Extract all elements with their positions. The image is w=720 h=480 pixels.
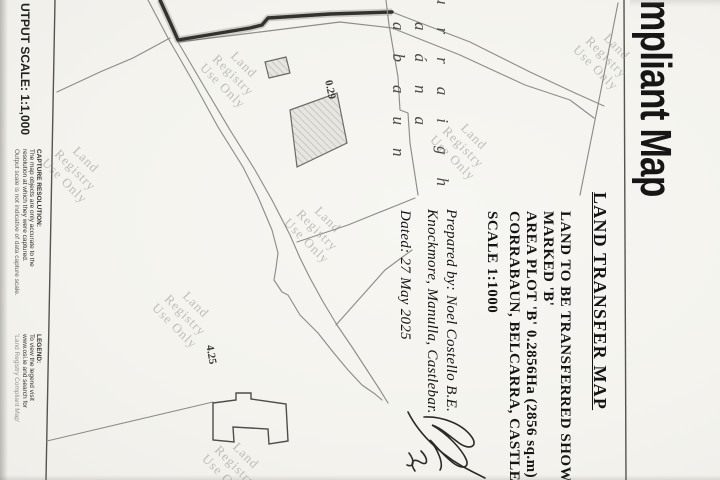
marked-b-line: MARKED 'B' bbox=[539, 211, 556, 306]
capture-resolution-block: CAPTURE RESOLUTION: The map objects are … bbox=[13, 149, 42, 296]
signature-initials bbox=[407, 451, 427, 471]
townland-letters-row3: abaun bbox=[388, 22, 408, 180]
legend-heading: LEGEND: bbox=[35, 334, 42, 422]
output-scale-label: UTPUT SCALE: 1:1,000 bbox=[18, 3, 32, 135]
scan-edge-shadow-bottom bbox=[0, 475, 720, 480]
boundary-to-footer bbox=[57, 38, 170, 92]
scan-edge-shadow-top-right bbox=[630, 0, 720, 7]
footer-rule bbox=[46, 0, 55, 480]
capture-resolution-line: resolution at which they were captured. bbox=[20, 149, 27, 296]
townland-address-line: CORRABAUN, BELCARRA, CASTLEBAR bbox=[505, 211, 522, 480]
scale-line: SCALE 1:1000 bbox=[483, 211, 500, 313]
map-sheet: mpliant Map bbox=[0, 0, 720, 480]
dated-line: Dated: 27 May 2025 bbox=[396, 210, 413, 340]
prepared-by-line: Prepared by: Noel Costello B.E. bbox=[442, 209, 459, 412]
legend-line: 'Land Registry Compliant Map' bbox=[13, 334, 20, 422]
legend-block: LEGEND: To view the legend visit www.osi… bbox=[13, 334, 42, 422]
capture-resolution-line: Output scale is not indicative of data c… bbox=[13, 149, 20, 296]
capture-resolution-heading: CAPTURE RESOLUTION: bbox=[35, 149, 42, 296]
hatched-parcel-large bbox=[290, 93, 347, 167]
area-plot-line: AREA PLOT 'B' 0.2856Ha (2856 sq.m) bbox=[522, 211, 539, 478]
legend-line: www.osi.ie and search for bbox=[20, 334, 27, 422]
scan-edge-shadow-left bbox=[0, 0, 8, 480]
prepared-address-line: Knockmore, Manulla, Castlebar. bbox=[423, 209, 440, 414]
scanned-land-transfer-map: mpliant Map bbox=[0, 0, 720, 480]
hatched-parcel-small bbox=[265, 57, 290, 78]
map-title: LAND TRANSFER MAP bbox=[589, 192, 610, 410]
legend-line: To view the legend visit bbox=[28, 334, 35, 422]
transfer-note-line: LAND TO BE TRANSFERRED SHOWN E bbox=[556, 211, 573, 480]
capture-resolution-line: The map objects are only accurate to the bbox=[28, 149, 35, 296]
